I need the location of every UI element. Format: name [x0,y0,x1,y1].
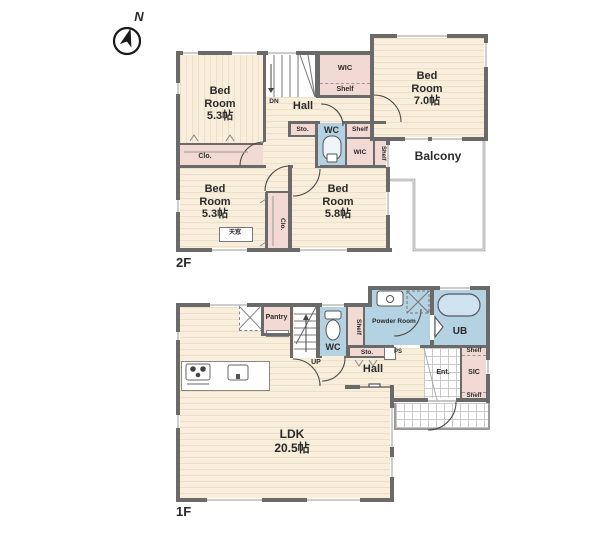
window [432,137,462,141]
shelf-mid-label: Shelf [347,126,373,133]
window [405,137,428,141]
window [212,248,247,252]
window [176,332,180,340]
wall [316,356,322,358]
shelf-wc-label: Shelf [349,310,362,343]
wall [288,165,293,168]
ub-label: UB [446,326,474,338]
bedroom-nw-label: Bed Room 5.3帖 [194,85,246,123]
wall [176,165,266,168]
wall [288,168,292,248]
window [386,145,390,167]
wic-north-label: WIC [320,64,370,73]
bedroom-ne-label: Bed Room 7.0帖 [400,70,454,108]
wall [290,303,293,358]
ps-label: PS [394,349,412,356]
wall [430,290,434,315]
room-size: 5.3帖 [202,208,228,220]
storage-2f-label: Sto. [290,126,315,133]
wall [265,192,268,248]
shelf-east-label: Shelf [375,140,386,167]
wall [288,135,317,137]
window [176,415,180,428]
wall [261,333,290,336]
hall-2f-label: Hall [283,100,323,113]
shelf-sic-top-label: Shelf [462,348,486,355]
entrance-label: Ent. [429,369,457,377]
powder-room-label: Powder Room [371,318,417,325]
pantry-label: Pantry [262,314,291,322]
wall [176,248,392,252]
window [183,51,198,55]
window [176,200,180,212]
window [390,457,394,477]
porch-tile [394,403,490,430]
powder-room-floor-upper [372,290,430,307]
window [484,43,488,67]
stairs-dn-label: DN [264,98,284,105]
room-size: 5.3帖 [207,110,233,122]
wall [176,51,180,252]
window [300,248,347,252]
floor1-label: 1F [176,505,206,520]
window [386,192,390,215]
wc-2f-label: WC [318,125,345,135]
skylight-label: 天窓 [219,230,251,237]
window [268,51,296,55]
shelf-sic-bottom-label: Shelf [462,393,486,400]
ub-floor [434,290,486,347]
window [486,360,490,374]
wall [394,398,428,402]
room-name: Bed Room [411,70,442,95]
wall [430,340,434,347]
wall [263,51,266,142]
compass-icon [114,27,140,54]
floor2-label: 2F [176,256,206,271]
bedroom-sw-label: Bed Room 5.3帖 [189,183,241,221]
sic-label: SIC [462,369,486,377]
wc-1f-label: WC [320,342,346,352]
kitchen-counter [181,361,270,391]
room-name: Bed Room [204,85,235,110]
storage-1f-label: Sto. [350,349,384,356]
wall [316,95,370,98]
room-size: 5.8帖 [325,208,351,220]
window [232,51,257,55]
refrigerator-space [239,306,263,331]
closet-mid-label: Clo. [270,206,286,242]
compass-label: N [130,10,148,25]
bedroom-se-label: Bed Room 5.8帖 [312,183,364,221]
room-name: Bed Room [322,183,353,208]
window [390,408,394,447]
stairs-2f [266,55,315,97]
front-door-gap [428,398,456,402]
shelf-north-label: Shelf [320,86,370,94]
wic-mid-label: WIC [347,149,373,156]
room-name: LDK [280,427,305,441]
window [322,303,344,307]
wall [345,385,360,389]
room-size: 7.0帖 [414,95,440,107]
wall [343,121,386,124]
ldk-label: LDK 20.5帖 [260,428,324,456]
balcony-label: Balcony [396,150,480,164]
wall [347,137,373,139]
wall [368,286,490,290]
closet-nw-label: Clo. [182,153,228,161]
window [207,498,262,502]
room-name: Bed Room [199,183,230,208]
wall [370,34,374,141]
hall-1f-label: Hall [352,363,394,376]
window [307,498,360,502]
stairs-up-label: UP [304,359,328,367]
wall [363,307,365,345]
window [397,34,447,38]
room-size: 20.5帖 [274,441,309,455]
wall [368,286,372,307]
floor-plan-page: N Bed Room 5.3帖 Bed Room 7.0帖 Bed Room 5… [0,0,600,533]
window [440,286,470,290]
wall [266,191,290,193]
window [210,303,247,307]
window [176,83,180,94]
powder-room-floor [365,307,430,345]
stairs-1f [294,307,316,358]
